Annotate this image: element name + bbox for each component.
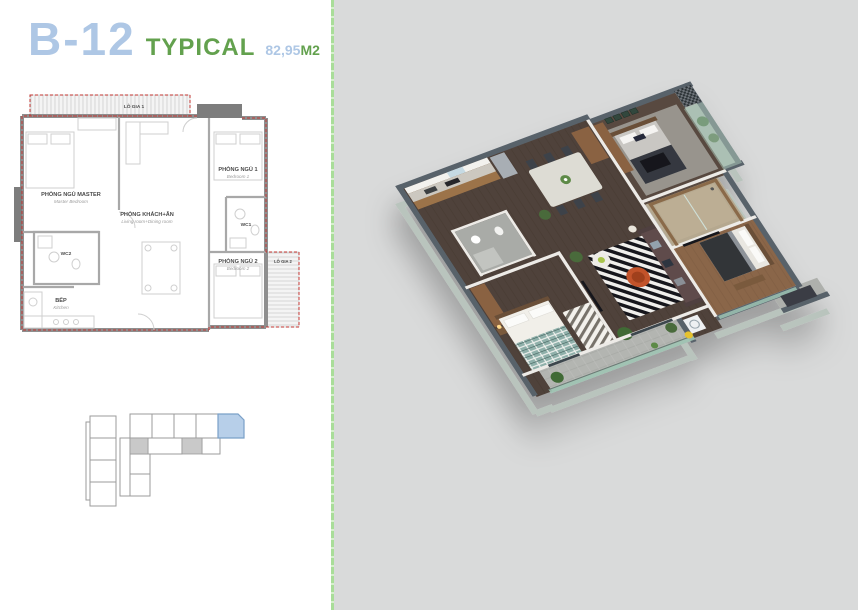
page-title: B-12 TYPICAL 82,95M2 [28,12,320,66]
unit-type-label: TYPICAL [146,34,256,62]
floor-plan-2d: LÔ GIA 1 PHÒNG NGỦ MASTER Master Bedroom… [14,92,302,336]
entry-block [197,104,242,118]
label-bedroom1-vi: PHÒNG NGỦ 1 [218,165,257,173]
keyplan-units [86,414,220,506]
label-living-vi: PHÒNG KHÁCH+ĂN [120,210,174,218]
unit-area: 82,95M2 [265,42,320,60]
key-plan [78,402,250,526]
iso-render [334,0,858,610]
apartment-3d [395,77,830,405]
page: B-12 TYPICAL 82,95M2 [0,0,858,610]
label-wc2: WC2 [61,251,72,257]
unit-code: B-12 [28,12,136,66]
label-bedroom1-en: Bedroom 1 [227,174,250,179]
label-master-vi: PHÒNG NGỦ MASTER [41,190,101,198]
balcony1-area [30,95,190,116]
label-wc1: WC1 [241,222,252,228]
label-bedroom2-en: Bedroom 2 [227,266,250,271]
render-panel [334,0,858,610]
room-labels: LÔ GIA 1 PHÒNG NGỦ MASTER Master Bedroom… [41,102,292,310]
label-master-en: Master Bedroom [54,199,88,204]
label-living-en: Living room+Dining room [121,219,172,224]
label-logia2: LÔ GIA 2 [274,259,292,264]
keyplan-highlighted-unit [218,414,244,438]
label-bedroom2-vi: PHÒNG NGỦ 2 [218,257,257,265]
column-block [14,187,22,242]
label-kitchen-vi: BẾP [55,297,67,304]
label-kitchen-en: Kitchen [53,305,69,310]
